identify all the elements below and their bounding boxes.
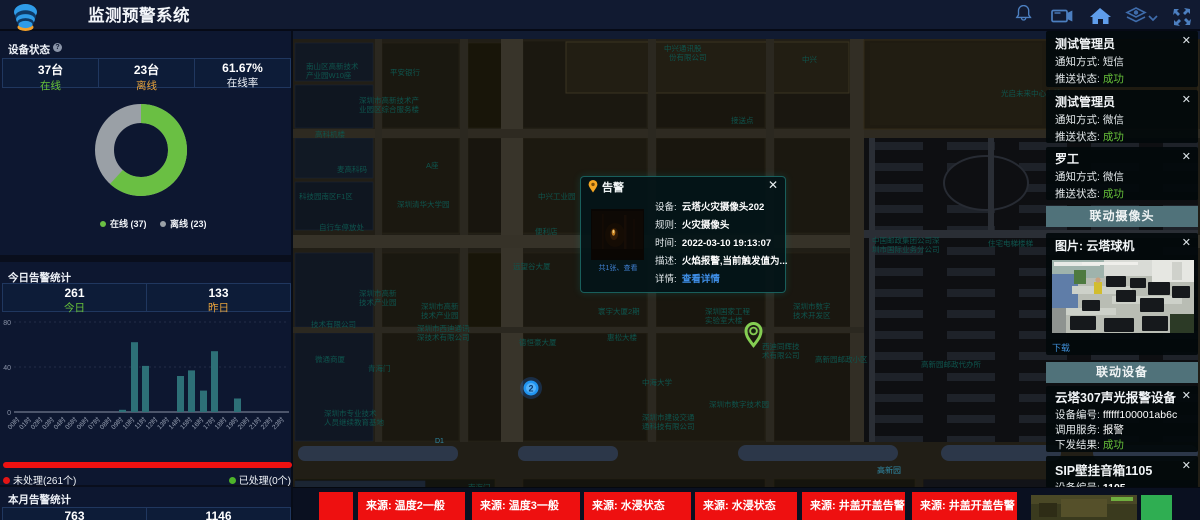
- svg-text:人员继续教育基地: 人员继续教育基地: [324, 417, 384, 427]
- svg-text:D1: D1: [435, 438, 444, 445]
- svg-text:技术有限公司: 技术有限公司: [311, 319, 356, 329]
- svg-text:南山区高新技术: 南山区高新技术: [306, 61, 359, 71]
- svg-text:德恒豪大厦: 德恒豪大厦: [519, 337, 557, 347]
- svg-text:深圳市高新技术产: 深圳市高新技术产: [359, 95, 419, 105]
- svg-text:业园区综合服务楼: 业园区综合服务楼: [359, 104, 419, 114]
- svg-text:中海大学: 中海大学: [642, 377, 672, 387]
- svg-text:便利店: 便利店: [535, 226, 558, 236]
- svg-text:远望谷大厦: 远望谷大厦: [513, 261, 551, 271]
- svg-text:住宅电梯楼梯: 住宅电梯楼梯: [988, 238, 1033, 248]
- svg-text:自行车停放处: 自行车停放处: [319, 222, 364, 232]
- svg-text:深圳市高新: 深圳市高新: [359, 288, 397, 298]
- svg-text:产业园W10座: 产业园W10座: [306, 70, 352, 80]
- svg-text:深圳市建设交通: 深圳市建设交通: [642, 412, 695, 422]
- svg-text:份有限公司: 份有限公司: [669, 52, 707, 62]
- svg-text:中兴: 中兴: [802, 54, 817, 64]
- svg-text:中兴通讯股: 中兴通讯股: [664, 43, 702, 53]
- svg-text:深圳市数字: 深圳市数字: [793, 301, 831, 311]
- svg-text:通科技有限公司: 通科技有限公司: [642, 421, 695, 431]
- svg-text:高新园: 高新园: [877, 465, 901, 475]
- svg-text:深圳市专业技术: 深圳市专业技术: [324, 408, 377, 418]
- svg-text:深技术有限公司: 深技术有限公司: [417, 332, 470, 342]
- svg-text:接送点: 接送点: [731, 115, 754, 125]
- svg-text:技术产业园: 技术产业园: [421, 310, 459, 320]
- svg-text:平安银行: 平安银行: [390, 67, 420, 77]
- svg-text:青海门: 青海门: [368, 363, 391, 373]
- svg-text:中国邮政集团公司深: 中国邮政集团公司深: [872, 235, 940, 245]
- svg-text:实验室大楼: 实验室大楼: [705, 315, 743, 325]
- svg-text:惠松大楼: 惠松大楼: [607, 332, 637, 342]
- svg-text:西迪同辉技: 西迪同辉技: [762, 341, 800, 351]
- svg-text:中兴工业园: 中兴工业园: [538, 191, 576, 201]
- svg-text:微通商厦: 微通商厦: [315, 354, 345, 364]
- svg-text:圳市国际业务分公司: 圳市国际业务分公司: [872, 244, 940, 254]
- svg-text:深圳国家工程: 深圳国家工程: [705, 306, 750, 316]
- svg-text:00时: 00时: [5, 415, 21, 431]
- svg-text:麦高科码: 麦高科码: [337, 164, 367, 174]
- svg-text:技术产业园: 技术产业园: [359, 297, 397, 307]
- svg-text:深圳清华大学园: 深圳清华大学园: [397, 199, 450, 209]
- svg-text:科技园南区F1区: 科技园南区F1区: [299, 191, 353, 201]
- svg-text:2: 2: [528, 384, 533, 394]
- svg-text:术有限公司: 术有限公司: [762, 350, 800, 360]
- svg-text:寰宇大厦2期: 寰宇大厦2期: [598, 306, 640, 316]
- svg-text:0: 0: [7, 410, 11, 417]
- svg-text:深圳市西迪通讯: 深圳市西迪通讯: [417, 323, 470, 333]
- svg-text:80: 80: [3, 320, 11, 327]
- svg-text:深圳市高新: 深圳市高新: [421, 301, 459, 311]
- svg-text:高科机楼: 高科机楼: [315, 129, 345, 139]
- svg-text:深圳市数字技术园: 深圳市数字技术园: [709, 399, 769, 409]
- svg-text:高新园邮政小区: 高新园邮政小区: [815, 354, 868, 364]
- svg-text:技术开发区: 技术开发区: [793, 310, 831, 320]
- svg-text:高新园邮政代办所: 高新园邮政代办所: [921, 359, 981, 369]
- svg-text:A座: A座: [426, 160, 439, 170]
- svg-text:40: 40: [3, 365, 11, 372]
